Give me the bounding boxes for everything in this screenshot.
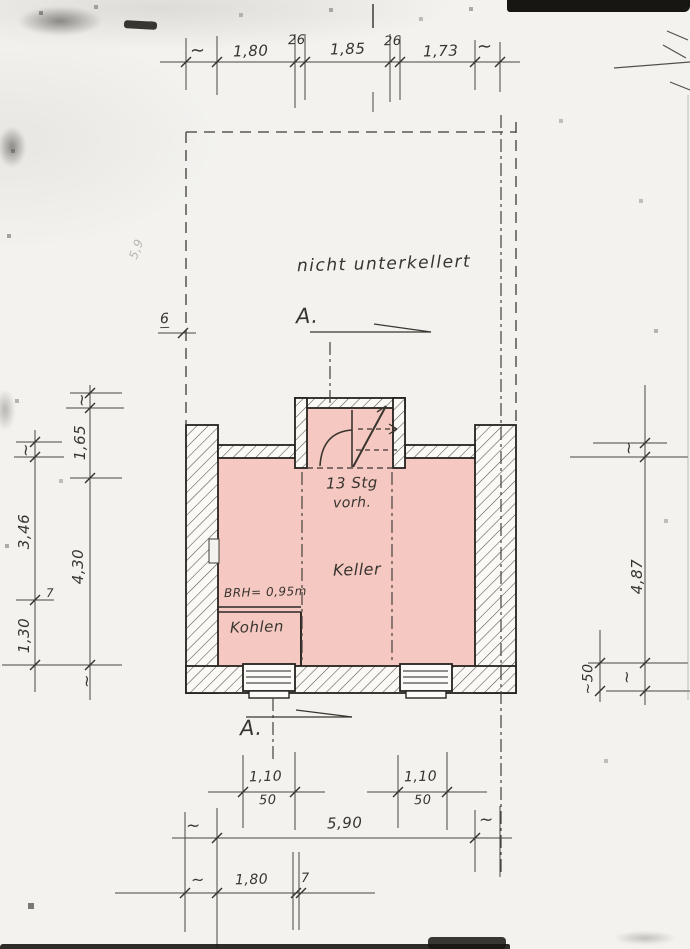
room-label-kohlen: Kohlen [230, 619, 284, 635]
wall-top-right [405, 445, 475, 458]
dim-bottom-7: 7 [301, 872, 310, 885]
area-note: nicht unterkellert [297, 254, 472, 276]
section-marker-a-bottom: A. [240, 718, 263, 740]
dim-right-tilde-bottom: ~ [619, 670, 635, 684]
wall-niche [209, 539, 219, 563]
dim-left-inner-1-65: 1,65 [73, 425, 88, 460]
stair-note-line1: 13 Stg [326, 475, 378, 491]
stair-wall-right [393, 398, 405, 468]
dim-left-inner-4-30: 4,30 [71, 549, 86, 584]
dim-bottom-tilde: ~ [191, 872, 205, 888]
dim-window-left-width: 1,10 [249, 770, 283, 785]
stair-note-line2: vorh. [333, 495, 372, 510]
sill-height-note: BRH= 0,95m [224, 585, 307, 599]
dim-window-right-height: 50 [414, 794, 432, 807]
dim-right-4-87: 4,87 [630, 559, 645, 594]
stair-wall-left [295, 398, 307, 468]
dim-left-outer-7: 7 [46, 587, 54, 599]
dim-top-1-73: 1,73 [423, 44, 459, 60]
wall-top-left [218, 445, 295, 458]
dim-total-5-90: 5,90 [327, 816, 363, 832]
dim-left-outer-1-30: 1,30 [17, 618, 32, 653]
window-left [243, 664, 295, 698]
room-label-keller: Keller [333, 561, 381, 578]
dim-top-wall-26-2: 26 [384, 35, 402, 48]
dim-left-outer-3-46: 3,46 [17, 514, 32, 549]
window-right [400, 664, 452, 698]
wall-right [475, 425, 516, 693]
section-marker-a-top: A. [296, 306, 319, 328]
dim-left-inner-tilde-top: ~ [74, 393, 90, 407]
dim-total-tilde-left: ~ [186, 818, 201, 835]
wall-bottom [186, 666, 516, 693]
scanned-floor-plan-page: ~ 1,80 26 1,85 26 1,73 ~ nicht unterkell… [0, 0, 690, 949]
dim-bottom-1-80: 1,80 [235, 873, 269, 888]
dim-top-wall-26-1: 26 [288, 34, 306, 47]
scan-strokes [614, 31, 690, 700]
dim-window-left-height: 50 [259, 794, 277, 807]
dim-top-1-80: 1,80 [233, 44, 269, 60]
dim-right-50: ~50 [582, 663, 596, 694]
dim-top-tilde-right: ~ [477, 38, 493, 56]
stair-wall-top [295, 398, 405, 408]
dim-top-1-85: 1,85 [330, 42, 366, 58]
dim-top-tilde-left: ~ [190, 42, 206, 60]
dim-left-inner-tilde-bottom: ~ [79, 674, 95, 688]
dim-window-right-width: 1,10 [404, 770, 438, 785]
dim-total-tilde-right: ~ [479, 812, 494, 829]
dim-left-outer-tilde: ~ [18, 443, 34, 457]
dim-right-tilde-top: ~ [621, 441, 637, 455]
offset-dim-6: 6 [160, 312, 170, 328]
scan-speckles [0, 0, 2, 2]
